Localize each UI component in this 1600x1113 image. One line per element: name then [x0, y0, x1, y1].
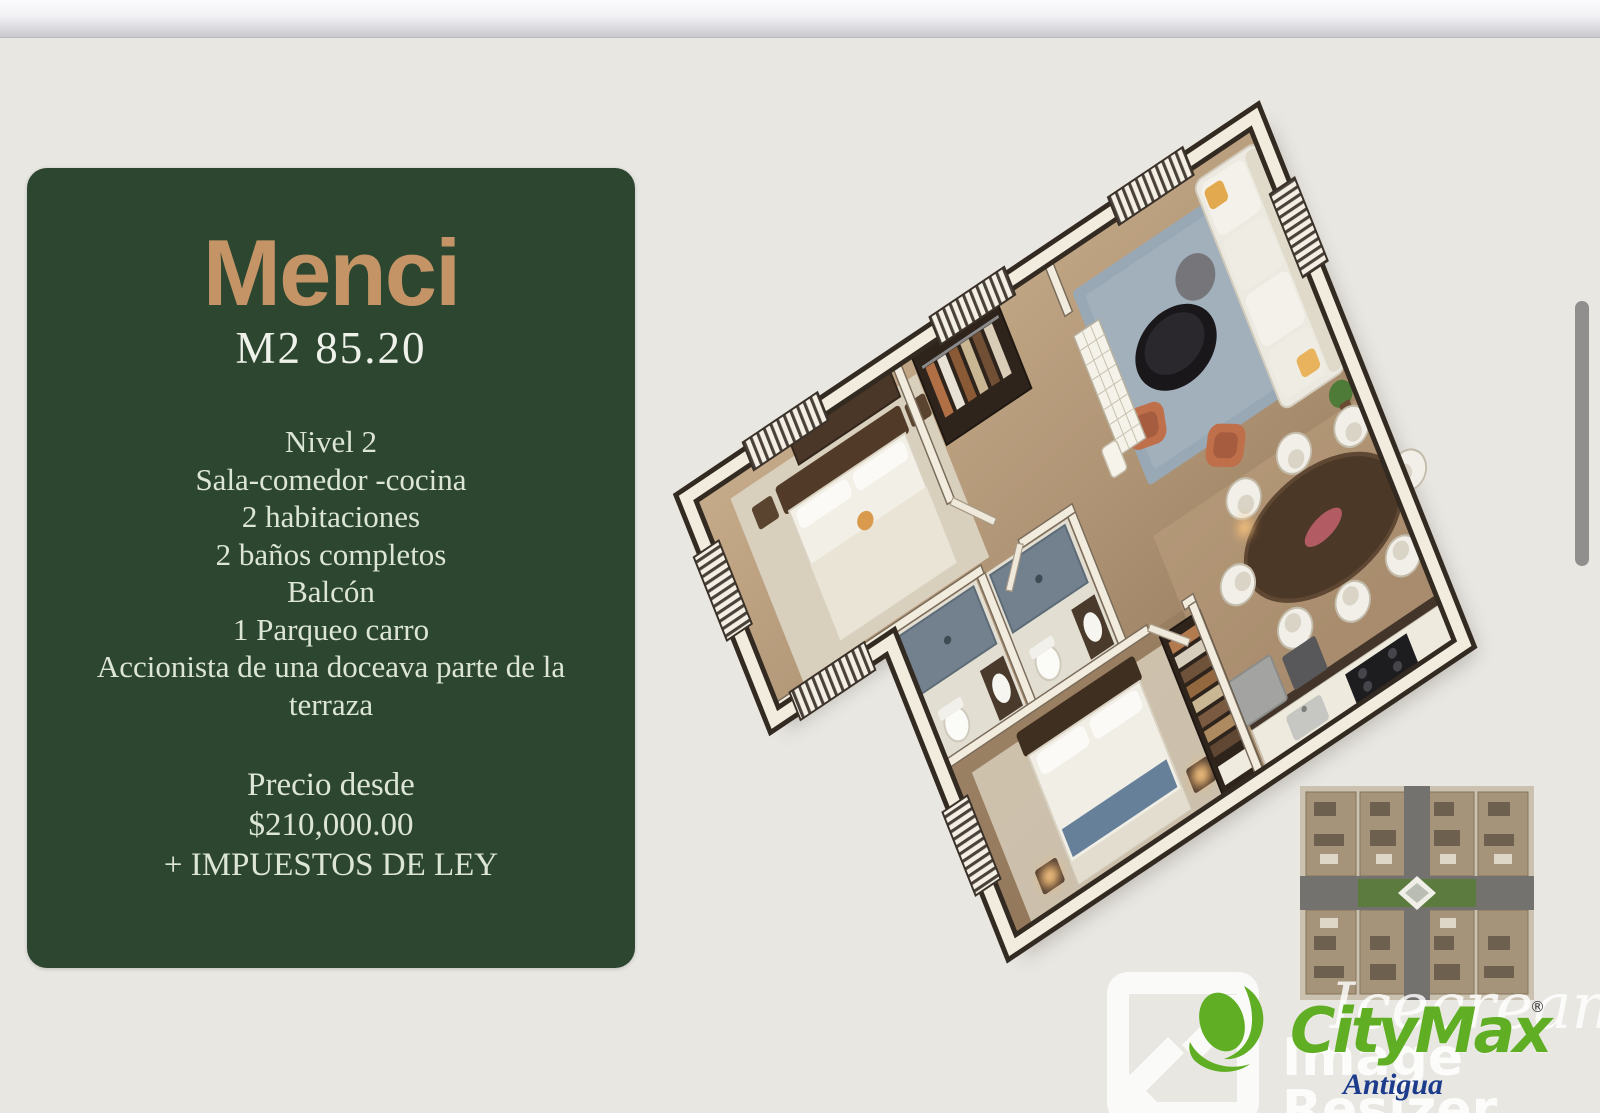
- citymax-region: Antigua: [1343, 1068, 1443, 1102]
- feature-living: Sala-comedor -cocina: [61, 461, 601, 499]
- feature-balcony: Balcón: [61, 573, 601, 611]
- citymax-wordmark: CityMax: [1290, 1000, 1549, 1062]
- building-siteplan-thumbnail: [1300, 786, 1534, 1000]
- unit-info-card: Menci M2 85.20 Nivel 2 Sala-comedor -coc…: [27, 168, 635, 968]
- feature-bathrooms: 2 baños completos: [61, 536, 601, 574]
- registered-mark: ®: [1530, 998, 1545, 1016]
- unit-features-list: Nivel 2 Sala-comedor -cocina 2 habitacio…: [61, 423, 601, 723]
- citymax-logo: CityMax ® Antigua: [1178, 980, 1558, 1105]
- scrollbar-thumb[interactable]: [1575, 301, 1589, 566]
- feature-parking: 1 Parqueo carro: [61, 611, 601, 649]
- unit-area: M2 85.20: [27, 326, 635, 371]
- price-amount: $210,000.00: [27, 805, 635, 845]
- feature-terrace-share: Accionista de una doceava parte de la te…: [61, 648, 601, 723]
- price-taxes-note: + IMPUESTOS DE LEY: [27, 845, 635, 885]
- feature-bedrooms: 2 habitaciones: [61, 498, 601, 536]
- unit-name: Menci: [27, 226, 635, 320]
- citymax-swoosh-icon: [1178, 980, 1288, 1090]
- price-block: Precio desde $210,000.00 + IMPUESTOS DE …: [27, 765, 635, 885]
- real-estate-listing-slide: Menci M2 85.20 Nivel 2 Sala-comedor -coc…: [0, 0, 1600, 1113]
- price-label: Precio desde: [27, 765, 635, 805]
- feature-level: Nivel 2: [61, 423, 601, 461]
